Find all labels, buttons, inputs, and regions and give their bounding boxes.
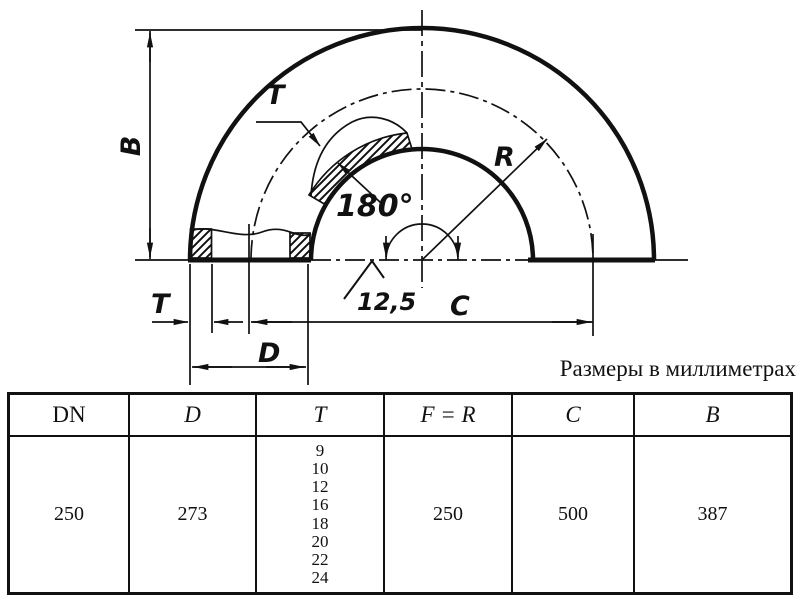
t-value: 12 (312, 478, 329, 496)
t-value: 24 (312, 569, 329, 587)
label-angle: 180° (336, 189, 414, 224)
table-header-b: B (635, 395, 790, 437)
table-cell-d: 273 (130, 437, 257, 592)
t-value: 9 (316, 442, 325, 460)
table-header-fr: F = R (385, 395, 513, 437)
table-cell-b: 387 (635, 437, 790, 592)
t-value: 20 (312, 533, 329, 551)
label-d: D (258, 338, 280, 369)
table-header-t: T (257, 395, 385, 437)
label-t-bottom: T (151, 289, 172, 320)
label-b: B (116, 136, 147, 157)
t-value: 22 (312, 551, 329, 569)
t-value: 18 (312, 515, 329, 533)
units-caption: Размеры в миллиметрах (560, 356, 796, 382)
page: T B 180° R (0, 0, 800, 600)
table-cell-c: 500 (513, 437, 635, 592)
t-value: 16 (312, 496, 329, 514)
label-r: R (494, 142, 515, 173)
table-header-dn: DN (10, 395, 130, 437)
t-value: 10 (312, 460, 329, 478)
table-cell-fr: 250 (385, 437, 513, 592)
radius-dimension (422, 139, 547, 260)
table-cell-t: 9 10 12 16 18 20 22 24 (257, 437, 385, 592)
elbow-drawing: T B 180° R (0, 0, 800, 392)
elbow-drawing-svg: T B 180° R (0, 0, 800, 392)
table-cell-dn: 250 (10, 437, 130, 592)
label-roughness: 12,5 (357, 288, 416, 316)
t-leader (256, 122, 320, 146)
label-c: C (450, 291, 470, 322)
dimensions-table: DN D T F = R C B 250 273 9 10 12 16 18 2… (7, 392, 793, 595)
table-header-c: C (513, 395, 635, 437)
table-header-d: D (130, 395, 257, 437)
label-t-top: T (266, 80, 287, 111)
